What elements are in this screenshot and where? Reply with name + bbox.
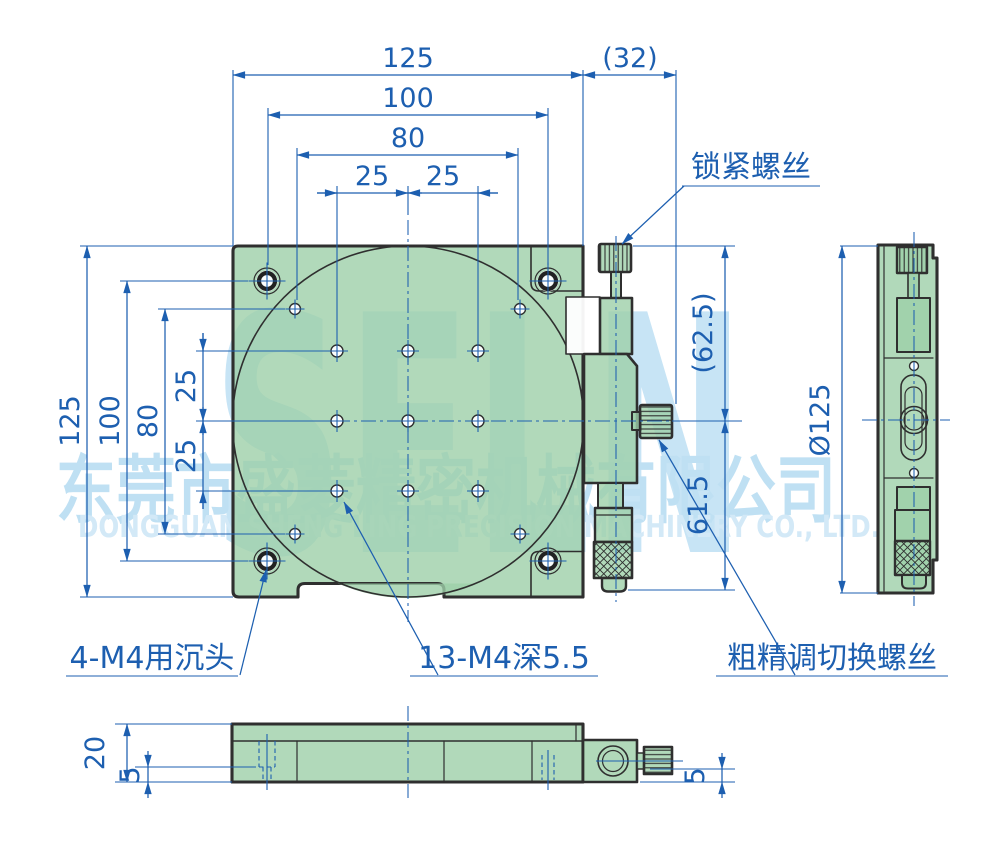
lock-screw-knurl: [599, 244, 631, 272]
callout-text: 锁紧螺丝: [691, 150, 811, 185]
callout-leader: [622, 186, 684, 244]
dim-text: 80: [133, 404, 164, 438]
bottom-view: [232, 706, 683, 798]
dim-text: 25: [426, 161, 460, 192]
dim-text: 80: [391, 123, 425, 154]
dim-text: 25: [355, 161, 389, 192]
lock-screw-clearance-notch: [566, 297, 600, 354]
engineering-drawing-page: SELN 东莞市盛菱精密机械有限公司 DONGGUAN SHENG LING P…: [0, 0, 1001, 853]
dim-text: Ø125: [805, 384, 836, 457]
drawing-canvas: SELN 东莞市盛菱精密机械有限公司 DONGGUAN SHENG LING P…: [0, 0, 1001, 853]
adjuster-housing: [584, 354, 637, 483]
micrometer-cap: [602, 578, 626, 592]
callout-locking-screw: 锁紧螺丝: [622, 150, 820, 244]
dim-text: 125: [55, 395, 86, 447]
dim-text: 5: [680, 767, 711, 784]
callout-text: 4-M4用沉头: [70, 641, 235, 676]
dim-text: 25: [171, 439, 202, 473]
side-view: [862, 232, 950, 606]
side-barrel: [895, 510, 930, 541]
dim-text: 25: [171, 369, 202, 403]
dim-text: 100: [382, 83, 434, 114]
thimble-knurl: [594, 542, 632, 578]
callout-text: 13-M4深5.5: [418, 641, 590, 676]
dim-text: (62.5): [688, 292, 719, 373]
side-thimble-knurl: [895, 541, 930, 575]
dim-text: 125: [382, 43, 434, 74]
dim-text: 5: [115, 766, 146, 783]
micrometer-spindle: [598, 483, 623, 508]
micrometer-barrel: [595, 508, 632, 542]
dim-text: 20: [80, 736, 111, 770]
side-lock-knurl: [897, 247, 927, 273]
dim-text: 100: [95, 395, 126, 447]
callout-text: 粗精调切换螺丝: [727, 641, 937, 676]
dim-text: (32): [602, 43, 657, 74]
